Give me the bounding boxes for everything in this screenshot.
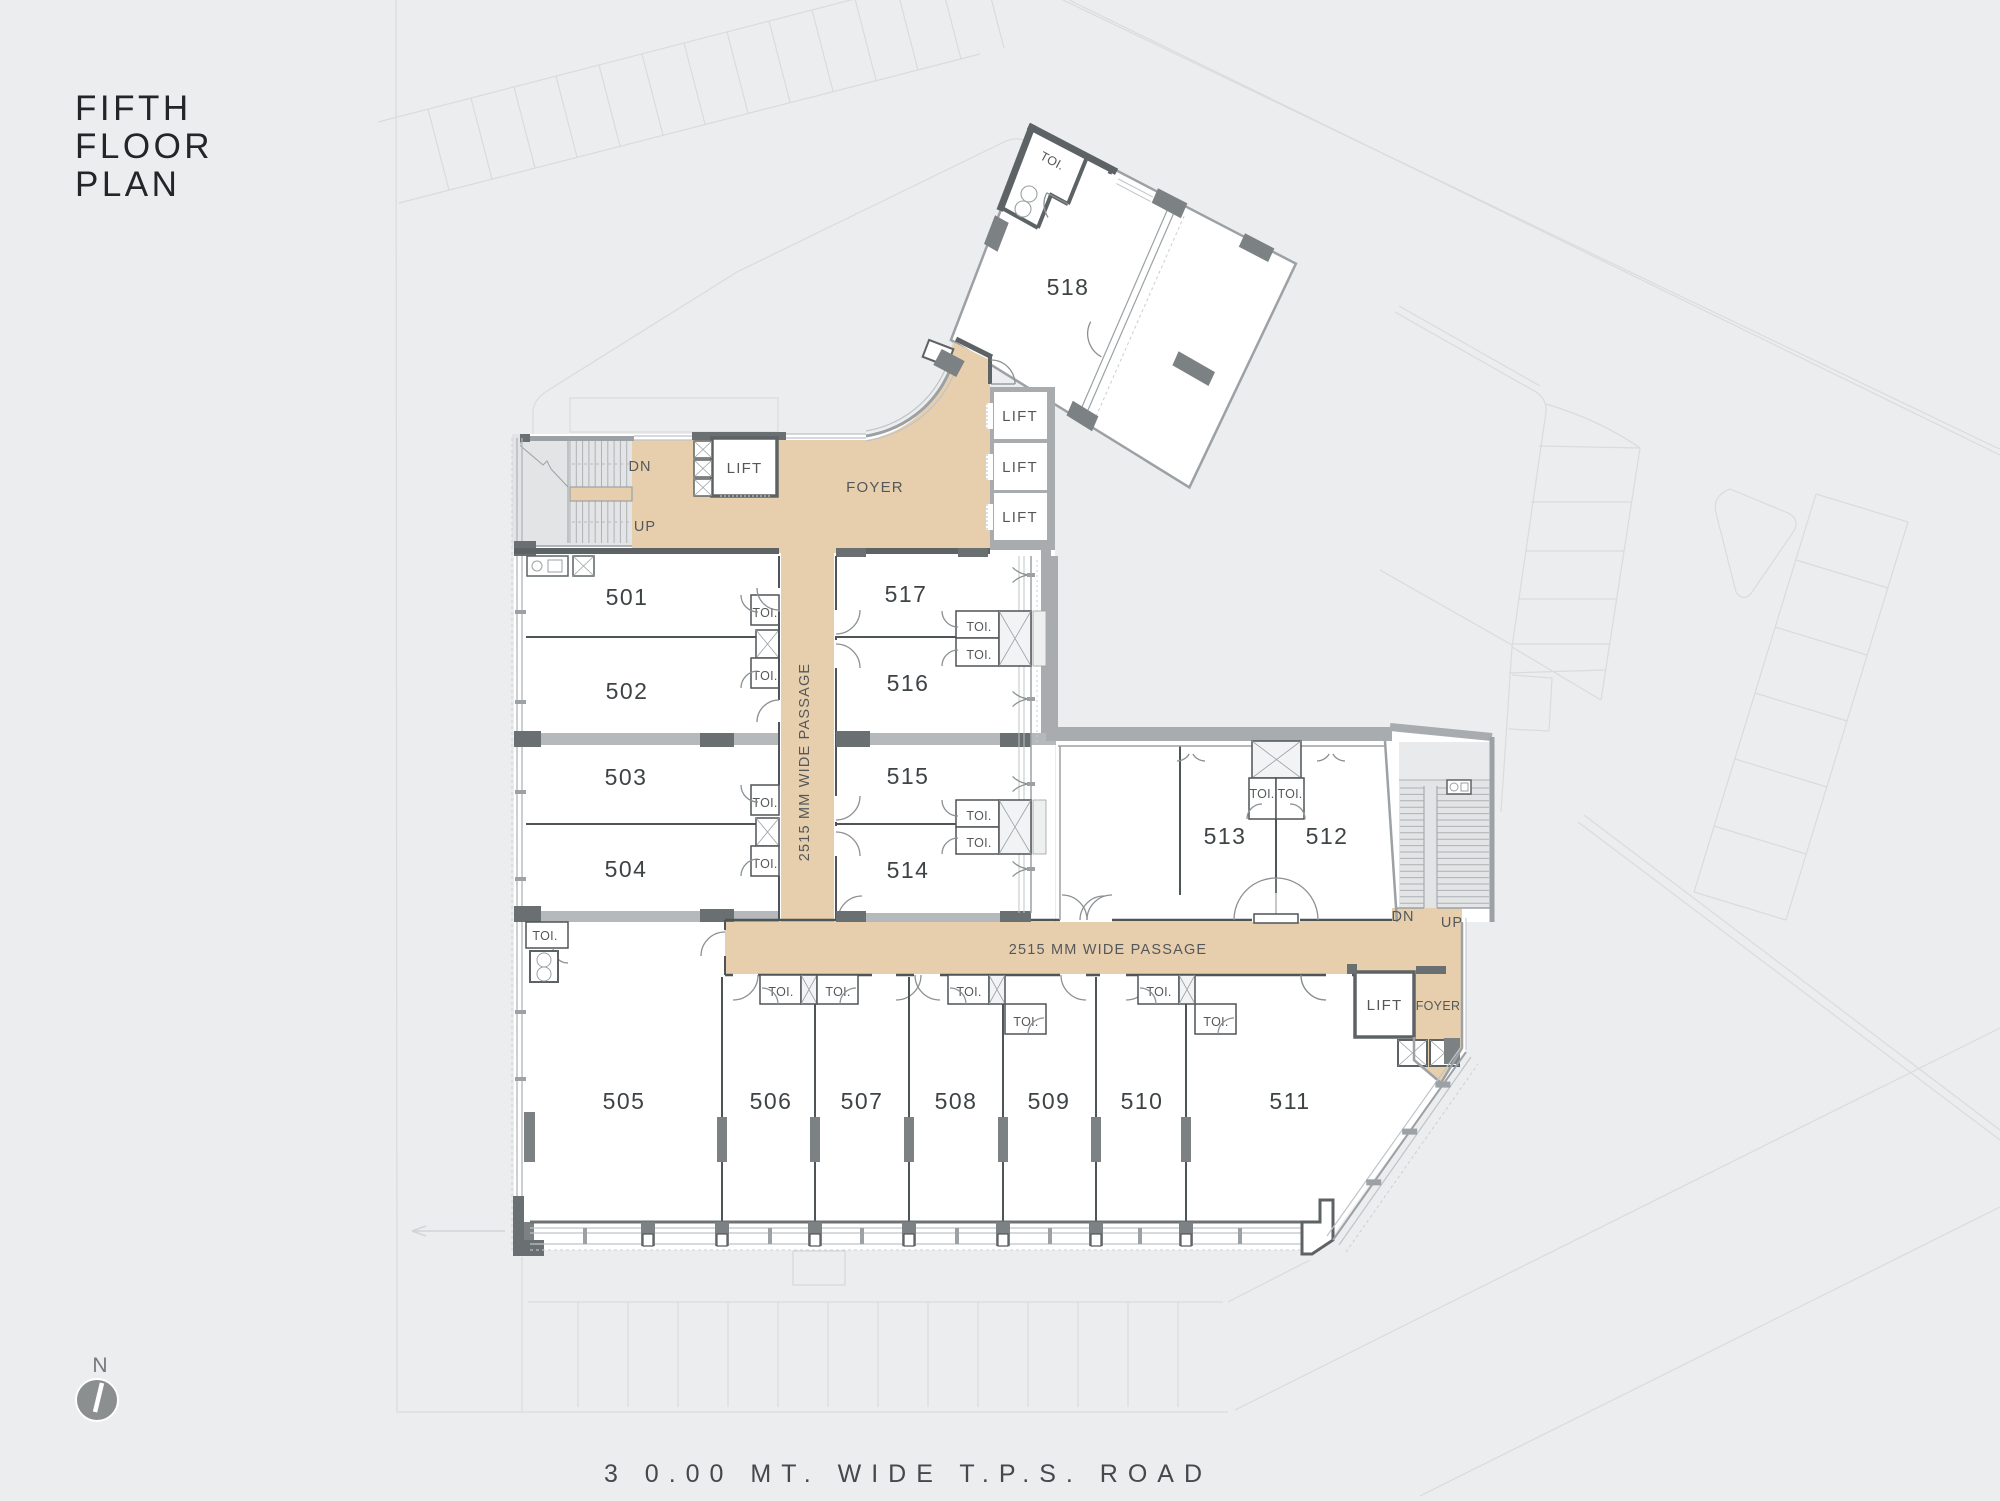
svg-text:FOYER: FOYER — [1416, 999, 1461, 1013]
svg-text:518: 518 — [1047, 274, 1090, 300]
svg-text:LIFT: LIFT — [1367, 997, 1403, 1014]
svg-text:TOI.: TOI. — [1013, 1015, 1038, 1029]
svg-text:TOI.: TOI. — [1278, 787, 1303, 801]
svg-text:3 0.00 MT. WIDE T.P.S. ROA: 3 0.00 MT. WIDE T.P.S. ROAD — [604, 1460, 1212, 1488]
svg-text:507: 507 — [841, 1088, 884, 1114]
svg-text:TOI.: TOI. — [966, 809, 991, 823]
svg-text:502: 502 — [606, 678, 649, 704]
svg-text:505: 505 — [603, 1088, 646, 1114]
svg-text:510: 510 — [1121, 1088, 1164, 1114]
svg-text:TOI.: TOI. — [966, 648, 991, 662]
svg-text:DN: DN — [629, 459, 652, 475]
svg-text:DN: DN — [1392, 909, 1415, 925]
svg-text:FOYER: FOYER — [846, 479, 904, 496]
svg-text:TOI.: TOI. — [825, 985, 850, 999]
svg-text:TOI.: TOI. — [532, 929, 557, 943]
svg-text:TOI.: TOI. — [966, 836, 991, 850]
svg-text:517: 517 — [885, 581, 928, 607]
svg-text:501: 501 — [606, 584, 649, 610]
svg-text:2515 MM WIDE PASSAGE: 2515 MM WIDE PASSAGE — [797, 663, 813, 862]
svg-text:515: 515 — [887, 763, 930, 789]
svg-text:509: 509 — [1028, 1088, 1071, 1114]
svg-text:LIFT: LIFT — [727, 460, 763, 477]
svg-text:UP: UP — [634, 519, 656, 535]
svg-text:UP: UP — [1441, 915, 1463, 931]
svg-text:TOI.: TOI. — [1250, 787, 1275, 801]
svg-text:TOI.: TOI. — [752, 796, 777, 810]
svg-text:2515 MM WIDE PASSAGE: 2515 MM WIDE PASSAGE — [1009, 942, 1208, 958]
svg-text:LIFT: LIFT — [1002, 509, 1038, 526]
svg-text:PLAN: PLAN — [75, 165, 180, 204]
svg-text:503: 503 — [605, 764, 648, 790]
svg-text:512: 512 — [1306, 823, 1349, 849]
svg-text:511: 511 — [1269, 1088, 1310, 1114]
svg-text:FLOOR: FLOOR — [75, 127, 213, 166]
svg-text:N: N — [92, 1354, 107, 1377]
svg-text:504: 504 — [605, 856, 648, 882]
svg-text:TOI.: TOI. — [1203, 1015, 1228, 1029]
svg-text:LIFT: LIFT — [1002, 408, 1038, 425]
svg-text:FIFTH: FIFTH — [75, 89, 192, 128]
svg-text:TOI.: TOI. — [966, 620, 991, 634]
svg-text:506: 506 — [750, 1088, 793, 1114]
svg-text:516: 516 — [887, 670, 930, 696]
svg-text:513: 513 — [1204, 823, 1247, 849]
svg-text:514: 514 — [887, 857, 930, 883]
svg-text:TOI.: TOI. — [752, 606, 777, 620]
svg-text:508: 508 — [935, 1088, 978, 1114]
svg-text:LIFT: LIFT — [1002, 459, 1038, 476]
